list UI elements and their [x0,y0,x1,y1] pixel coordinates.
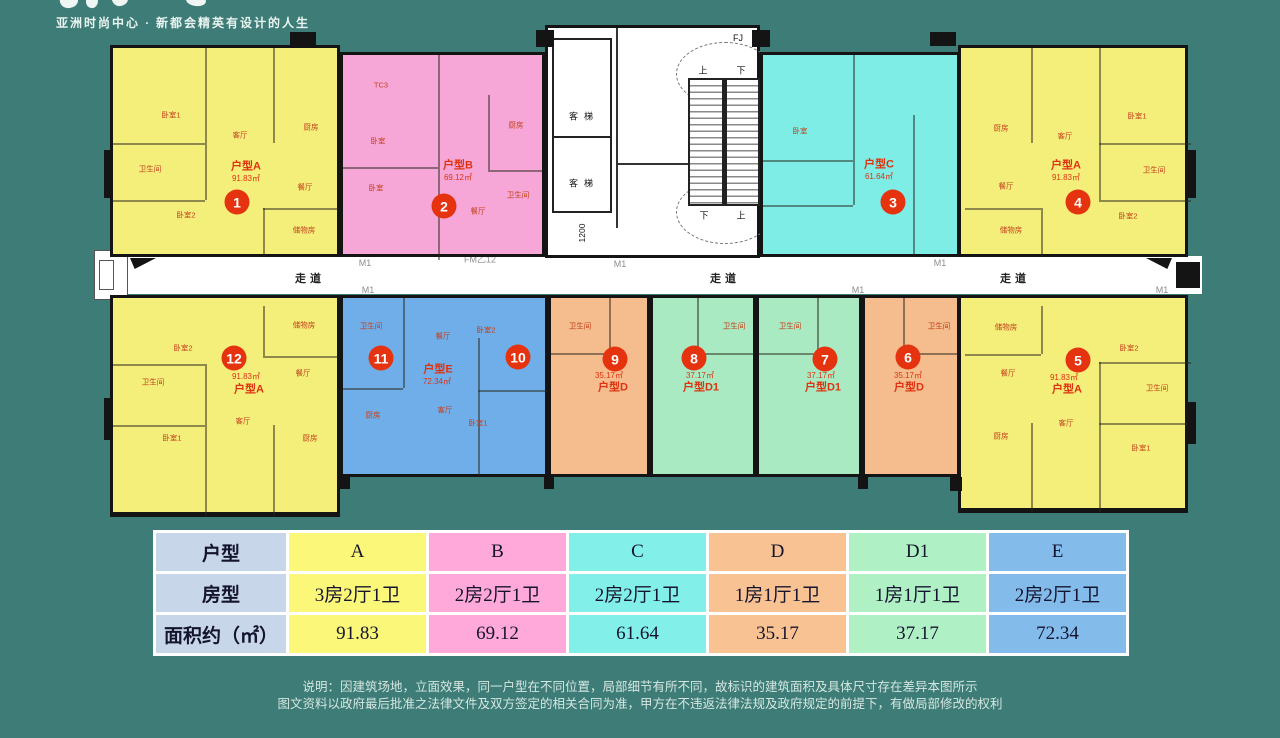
room-label-bedroom: 卧室 [371,137,386,145]
unit-type-label: 户型C [864,160,894,171]
stair-down-label: 下 [699,209,708,222]
room-label-dining: 餐厅 [436,332,451,340]
table-cell-area-a: 91.83 [289,615,426,653]
unit-number-badge: 12 [222,346,247,371]
disclaimer: 说明：因建筑场地，立面效果，同一户型在不同位置，局部细节有所不同，故标识的建筑面… [0,679,1280,713]
disclaimer-line-2: 图文资料以政府最后批准之法律文件及双方签定的相关合同为准，甲方在不违返法律法规及… [0,696,1280,713]
room-label-bedroom1: 卧室1 [468,419,487,427]
logo-stroke [185,0,206,7]
wall-segment [616,28,618,228]
unit-area-label: 37.17㎡ [686,372,714,380]
unit-type-label: 户型B [443,161,473,172]
room-label-bath: 卫生间 [928,322,951,330]
partition-line [1099,423,1191,425]
table-row-header: 户型 [156,533,286,571]
partition-line [273,48,275,143]
table-cell-layout-d1: 1房1厅1卫 [849,574,986,612]
unit-6-type-D: 卫生间 6 35.17㎡ 户型D [862,295,960,477]
room-label-bath: 卫生间 [507,191,530,199]
wall-segment [104,150,112,198]
table-cell-layout-b: 2房2厅1卫 [429,574,566,612]
room-label-storage: 储物房 [1000,226,1023,234]
room-label-bath: 卫生间 [1146,384,1169,392]
partition-line [205,48,207,200]
room-label-bath: 卫生间 [1143,166,1166,174]
room-label-storage: 储物房 [293,321,316,329]
unit-number-badge: 8 [682,346,707,371]
corridor-label: 走道 [710,270,740,286]
table-cell-type-d1: D1 [849,533,986,571]
door-label: M1 [852,285,865,295]
partition-line [1099,362,1191,364]
partition-line [343,167,438,169]
partition-line [488,95,490,170]
unit-type-label: 户型A [231,162,261,173]
room-label-bath: 卫生间 [723,322,746,330]
table-cell-area-c: 61.64 [569,615,706,653]
partition-line [263,356,339,358]
wall-segment [1176,262,1200,288]
door-label: M1 [362,285,375,295]
room-label-living: 客厅 [1058,132,1073,140]
partition-line [343,388,403,390]
door-label: M1 [614,259,627,269]
building-core: 客梯 客梯 上 下 下 上 FJ 1200 [545,25,760,258]
table-cell-layout-e: 2房2厅1卫 [989,574,1126,612]
room-label-living: 客厅 [438,406,453,414]
table-cell-type-b: B [429,533,566,571]
room-label-tc3: TC3 [374,81,388,89]
unit-area-label: 72.34㎡ [423,378,451,386]
table-cell-area-e: 72.34 [989,615,1126,653]
room-label-bath: 卫生间 [569,322,592,330]
partition-line [1031,423,1033,512]
partition-line [1099,143,1191,145]
stair-up-label: 上 [698,64,707,77]
area-table: 户型 A B C D D1 E 房型 3房2厅1卫 2房2厅1卫 2房2厅1卫 … [153,530,1129,656]
unit-number-badge: 11 [369,346,394,371]
shaft-box [99,260,114,290]
unit-3-type-C: 卧室 户型C 61.64㎡ 3 [760,52,960,257]
table-row-header: 面积约（㎡） [156,615,286,653]
table-cell-area-d: 35.17 [709,615,846,653]
room-label-bedroom2: 卧室2 [173,344,192,352]
partition-line [697,298,699,353]
partition-line [609,298,611,353]
partition-line [913,115,915,255]
partition-line [438,55,440,260]
partition-line [853,55,855,205]
unit-12-type-A: 卧室2 卫生间 卧室1 客厅 餐厅 储物房 厨房 12 91.83㎡ 户型A [110,295,340,517]
logo-stroke [58,0,79,10]
partition-line [965,208,1041,210]
unit-11-10-type-E: 卫生间 餐厅 卧室2 厨房 客厅 卧室1 11 10 户型E 72.34㎡ [340,295,548,477]
corridor-label: 走道 [1000,270,1030,286]
partition-line [403,298,405,388]
table-cell-layout-a: 3房2厅1卫 [289,574,426,612]
unit-type-label: 户型A [1052,385,1082,396]
unit-number-badge: 3 [881,190,906,215]
brand-tagline: 亚洲时尚中心 · 新都会精英有设计的人生 [56,14,310,31]
table-row-header: 房型 [156,574,286,612]
partition-line [273,425,275,516]
unit-area-label: 91.83㎡ [232,175,260,183]
partition-line [263,208,265,256]
partition-line [488,170,543,172]
fj-label: FJ [733,33,743,43]
room-label-kitchen: 厨房 [509,121,524,129]
room-label-bedroom1: 卧室1 [1127,112,1146,120]
room-label-bedroom2: 卧室2 [476,326,495,334]
unit-7-type-D1: 卫生间 7 37.17㎡ 户型D1 [756,295,862,477]
wall-segment [616,163,688,165]
wall-segment [950,477,962,491]
partition-line [113,425,205,427]
partition-line [1099,200,1191,202]
partition-line [263,306,265,356]
partition-line [263,208,339,210]
wall-segment [930,32,956,46]
elevator-label: 客梯 [569,110,599,123]
door-label: M1 [359,258,372,268]
staircase [688,78,760,206]
unit-area-label: 91.83㎡ [1050,374,1078,382]
room-label-dining: 餐厅 [296,369,311,377]
wall-segment [858,477,868,489]
unit-type-label: 户型D [598,383,628,394]
room-label-living: 客厅 [236,417,251,425]
room-label-bedroom1: 卧室1 [1131,444,1150,452]
room-label-kitchen: 厨房 [994,124,1009,132]
logo-stroke [85,0,100,9]
partition-line [1041,306,1043,354]
room-label-bedroom: 卧室 [793,127,808,135]
partition-line [965,354,1041,356]
wall-segment [104,398,112,440]
room-label-bedroom1: 卧室1 [162,434,181,442]
logo-stroke [109,0,130,9]
unit-8-type-D1: 卫生间 8 37.17㎡ 户型D1 [650,295,756,477]
unit-type-label: 户型D1 [683,383,719,394]
stair-up-label: 上 [736,209,745,222]
wall-segment [1188,402,1196,444]
wall-segment [752,30,770,47]
table-cell-area-b: 69.12 [429,615,566,653]
wall-segment [338,477,350,489]
unit-number-badge: 5 [1066,348,1091,373]
unit-area-label: 61.64㎡ [865,173,893,181]
unit-area-label: 69.12㎡ [444,174,472,182]
partition-line [113,143,205,145]
room-label-dining: 餐厅 [999,182,1014,190]
wall-segment [536,30,554,47]
unit-type-label: 户型D1 [805,383,841,394]
partition-line [113,364,205,366]
unit-number-badge: 4 [1066,190,1091,215]
room-label-bedroom2: 卧室2 [176,211,195,219]
unit-type-label: 户型D [894,383,924,394]
partition-line [763,205,853,207]
unit-9-type-D: 卫生间 9 35.17㎡ 户型D [548,295,650,477]
table-cell-type-d: D [709,533,846,571]
table-cell-type-c: C [569,533,706,571]
dimension-label: 1200 [577,224,587,243]
room-label-kitchen: 厨房 [366,411,381,419]
partition-line [1041,208,1043,256]
wall-segment [290,32,316,46]
room-label-kitchen: 厨房 [994,432,1009,440]
partition-line [113,200,205,202]
partition-line [763,160,853,162]
partition-line [1031,48,1033,143]
room-label-bath: 卫生间 [139,165,162,173]
room-label-living: 客厅 [233,131,248,139]
room-label-bedroom2: 卧室2 [1119,344,1138,352]
unit-type-label: 户型A [1051,161,1081,172]
partition-line [1099,362,1101,512]
unit-area-label: 37.17㎡ [807,372,835,380]
room-label-kitchen: 厨房 [303,434,318,442]
unit-number-badge: 7 [813,347,838,372]
partition-line [817,298,819,353]
room-label-dining: 餐厅 [298,183,313,191]
room-label-kitchen: 厨房 [304,123,319,131]
corridor-label: 走道 [295,270,325,286]
unit-5-type-A: 储物房 餐厅 厨房 客厅 卧室2 卫生间 卧室1 5 91.83㎡ 户型A [958,295,1188,513]
unit-2-type-B: TC3 卧室 卧室 厨房 餐厅 卫生间 户型B 69.12㎡ 2 [340,52,545,257]
unit-area-label: 91.83㎡ [1052,174,1080,182]
unit-number-badge: 6 [896,345,921,370]
room-label-storage: 储物房 [293,226,316,234]
room-label-bath: 卫生间 [360,322,383,330]
room-label-bath: 卫生间 [142,378,165,386]
partition-line [478,338,480,476]
wall-segment [544,477,554,489]
door-label: M1 [1156,285,1169,295]
unit-type-label: 户型E [423,365,452,376]
elevator-label: 客梯 [569,177,599,190]
partition-line [478,390,548,392]
table-cell-type-a: A [289,533,426,571]
room-label-bath: 卫生间 [779,322,802,330]
room-label-dining: 餐厅 [471,207,486,215]
room-label-bedroom: 卧室 [369,184,384,192]
room-label-bedroom1: 卧室1 [161,111,180,119]
unit-number-badge: 9 [603,347,628,372]
unit-area-label: 35.17㎡ [595,372,623,380]
unit-area-label: 91.83㎡ [232,373,260,381]
table-cell-area-d1: 37.17 [849,615,986,653]
table-cell-layout-d: 1房1厅1卫 [709,574,846,612]
unit-type-label: 户型A [234,385,264,396]
table-cell-layout-c: 2房2厅1卫 [569,574,706,612]
partition-line [551,353,609,355]
room-label-dining: 餐厅 [1001,369,1016,377]
partition-line [759,353,817,355]
unit-4-type-A: 卧室1 卫生间 卧室2 客厅 厨房 餐厅 储物房 户型A 91.83㎡ 4 [958,45,1188,257]
partition-line [1099,48,1101,200]
room-label-bedroom2: 卧室2 [1118,212,1137,220]
unit-number-badge: 10 [506,345,531,370]
unit-number-badge: 1 [225,190,250,215]
floorplan-poster: 亚洲时尚中心 · 新都会精英有设计的人生 走道 走道 走道 M1 M1 M1 M… [0,0,1280,738]
room-label-storage: 储物房 [995,323,1018,331]
door-label: M1 [934,258,947,268]
unit-1-type-A: 卧室1 卫生间 卧室2 客厅 厨房 餐厅 储物房 户型A 91.83㎡ 1 [110,45,340,257]
wall-segment [1188,150,1196,198]
partition-line [205,364,207,516]
disclaimer-line-1: 说明：因建筑场地，立面效果，同一户型在不同位置，局部细节有所不同，故标识的建筑面… [0,679,1280,696]
room-label-living: 客厅 [1059,419,1074,427]
unit-number-badge: 2 [432,194,457,219]
table-cell-type-e: E [989,533,1126,571]
stair-down-label: 下 [736,64,745,77]
unit-area-label: 35.17㎡ [894,372,922,380]
corridor [96,256,1202,294]
